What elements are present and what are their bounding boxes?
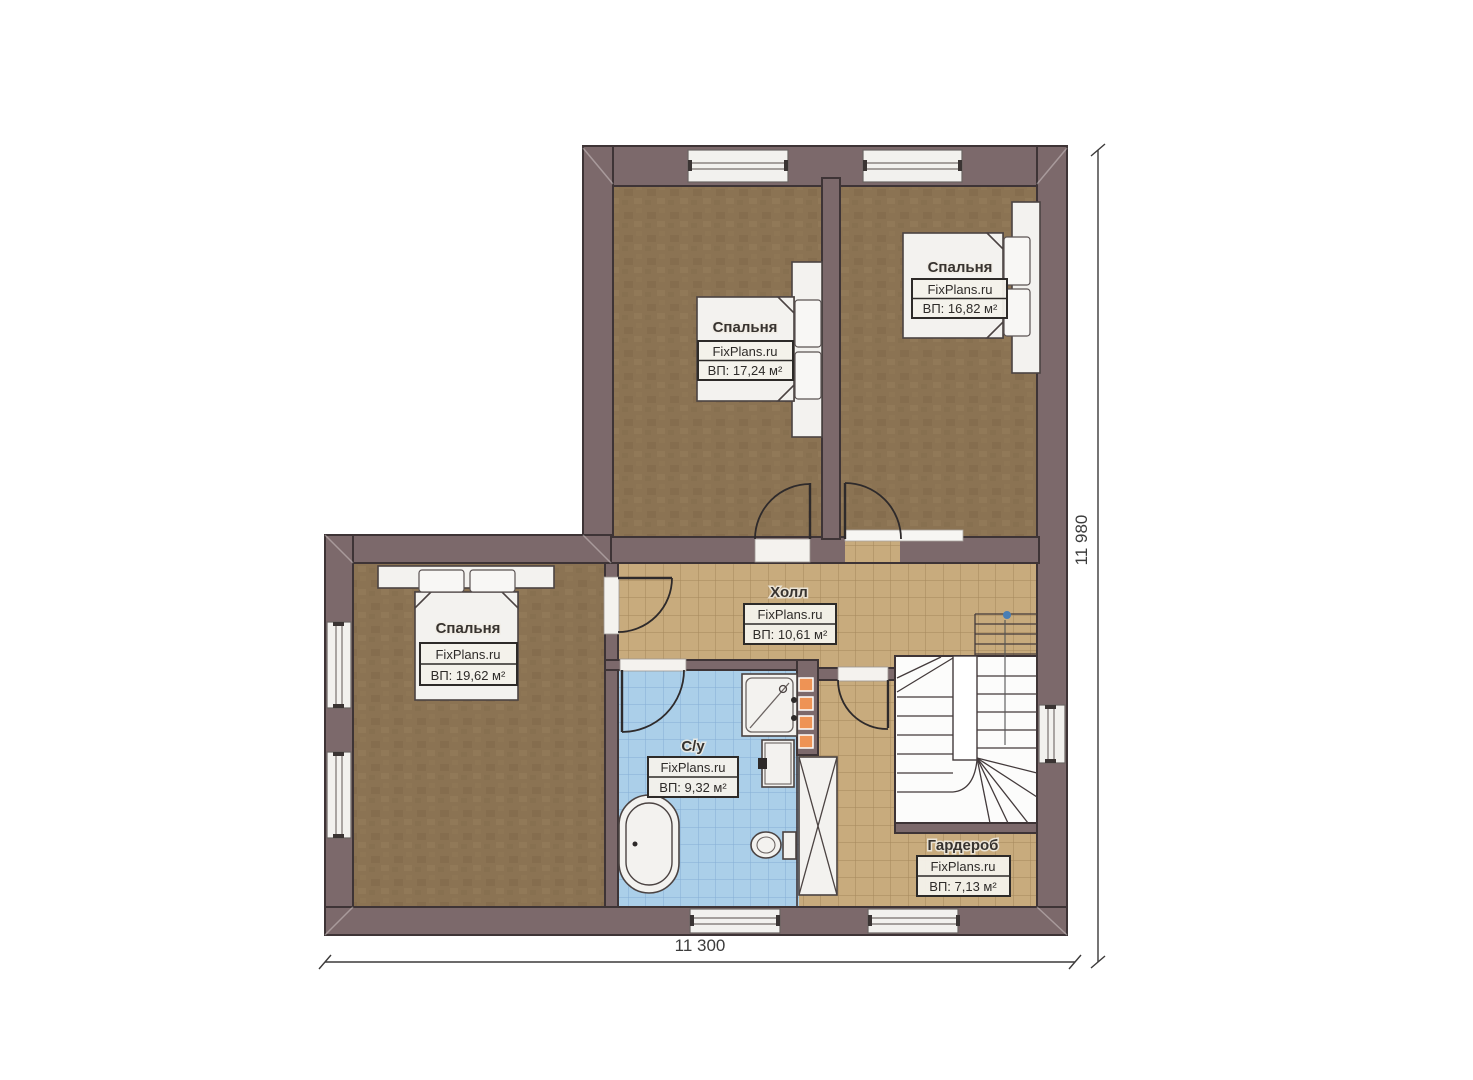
wardrobe-cabinet-icon (799, 757, 837, 895)
shower-icon (742, 674, 797, 736)
toilet-icon (751, 832, 796, 859)
window (327, 622, 351, 708)
room-name: С/у (681, 738, 705, 755)
pillow (419, 570, 464, 592)
wall (1037, 146, 1067, 935)
wall-partition-bedrooms (822, 178, 840, 539)
pillow (795, 352, 821, 399)
brand-label: FixPlans.ru (712, 344, 777, 359)
room-name: Спальня (436, 620, 501, 637)
window (690, 909, 780, 933)
dimension-text-height: 11 980 (1072, 515, 1091, 566)
area-label: ВП: 7,13 м² (929, 879, 997, 894)
room-name: Спальня (713, 319, 778, 336)
pillow (795, 300, 821, 347)
room-label-wardrobe: Гардероб FixPlans.ru ВП: 7,13 м² (917, 837, 1010, 896)
floor-plan-page: Спальня FixPlans.ru ВП: 17,24 м² Спальня… (0, 0, 1473, 1080)
wall (583, 146, 613, 563)
window (868, 909, 960, 933)
headboard-unit (792, 262, 822, 437)
dimension-bottom: 11 300 (319, 936, 1081, 969)
wall (325, 535, 353, 935)
stair-stringer (953, 656, 977, 760)
dimension-right: 11 980 (1072, 144, 1105, 968)
pillow (1004, 237, 1030, 285)
brand-label: FixPlans.ru (435, 647, 500, 662)
brand-label: FixPlans.ru (930, 859, 995, 874)
sink-icon (758, 740, 794, 787)
headboard-unit (378, 566, 554, 588)
headboard-unit (1012, 202, 1040, 373)
window (1039, 705, 1065, 763)
area-label: ВП: 16,82 м² (923, 301, 998, 316)
wall (611, 537, 1039, 563)
brand-label: FixPlans.ru (757, 607, 822, 622)
room-name: Холл (770, 584, 808, 601)
brand-label: FixPlans.ru (660, 760, 725, 775)
area-label: ВП: 9,32 м² (659, 780, 727, 795)
area-label: ВП: 10,61 м² (753, 627, 828, 642)
area-label: ВП: 19,62 м² (431, 668, 506, 683)
window (863, 150, 962, 182)
bathtub-icon (619, 795, 679, 893)
stair-start-marker (1003, 611, 1011, 619)
floor-plan-drawing: Спальня FixPlans.ru ВП: 17,24 м² Спальня… (0, 0, 1473, 1080)
window (688, 150, 788, 182)
pillow (470, 570, 515, 592)
room-name: Гардероб (928, 837, 999, 854)
wall (325, 535, 611, 563)
area-label: ВП: 17,24 м² (708, 363, 783, 378)
brand-label: FixPlans.ru (927, 282, 992, 297)
window (327, 752, 351, 838)
wall-under-stairs (895, 823, 1037, 833)
room-name: Спальня (928, 259, 993, 276)
dimension-text-width: 11 300 (675, 936, 726, 955)
